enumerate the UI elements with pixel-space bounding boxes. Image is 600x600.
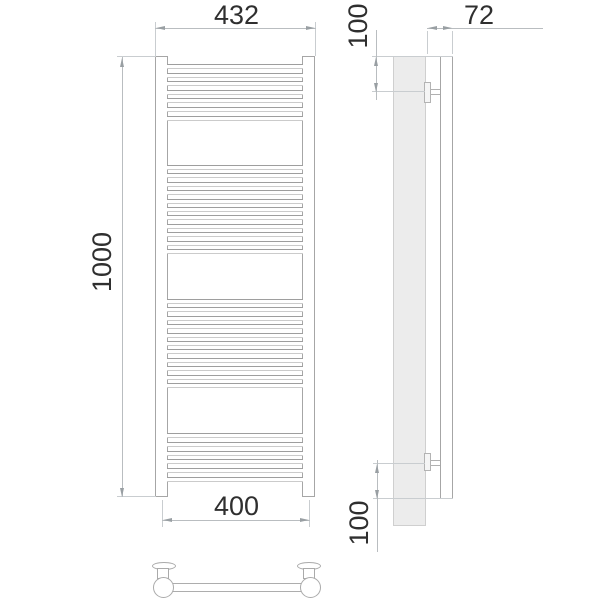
ext-line	[427, 31, 428, 54]
tube-row	[167, 173, 303, 178]
ext-line	[372, 56, 453, 57]
tube-row	[167, 366, 303, 371]
dim-arrow	[120, 488, 124, 497]
tube-row	[167, 375, 303, 380]
tube-row	[167, 307, 303, 312]
dim-label-top-width: 432	[199, 1, 274, 29]
tube-row	[167, 349, 303, 354]
tube-row	[167, 333, 303, 338]
tube-row	[167, 468, 303, 473]
front-left-post	[155, 56, 168, 497]
tube-row	[167, 90, 303, 95]
ext-line	[373, 498, 453, 499]
tube-row	[167, 442, 303, 447]
tube-row	[167, 433, 303, 438]
technical-drawing-canvas: 432 1000 400 72	[0, 0, 600, 600]
dim-arrow	[443, 26, 452, 30]
dim-arrow	[163, 518, 172, 522]
tube-row	[167, 73, 303, 78]
tube-row	[167, 182, 303, 187]
dim-arrow	[374, 57, 378, 66]
ext-line	[373, 463, 425, 464]
dim-label-depth: 72	[453, 1, 505, 29]
dim-arrow	[428, 26, 437, 30]
left-valve-ball	[153, 577, 174, 598]
tube-row	[167, 98, 303, 103]
bottom-view-tube	[172, 583, 306, 592]
tube-row	[167, 207, 303, 212]
ext-line	[309, 500, 310, 527]
side-post-profile	[440, 56, 453, 499]
dim-arrow	[300, 518, 309, 522]
tube-row	[167, 232, 303, 237]
ext-line	[372, 91, 425, 92]
top-bracket-arm	[431, 89, 440, 95]
tube-row	[167, 358, 303, 363]
tube-row	[167, 165, 303, 170]
dim-label-bottom-offset: 100	[345, 495, 373, 551]
tube-row	[167, 316, 303, 321]
tube-row	[167, 224, 303, 229]
ext-line	[452, 31, 453, 54]
side-wall-panel	[393, 56, 426, 526]
tube-row	[167, 477, 303, 482]
tube-row	[167, 199, 303, 204]
dim-label-height: 1000	[88, 231, 116, 293]
ext-line	[162, 500, 163, 527]
dim-arrow	[306, 26, 315, 30]
front-right-post	[302, 56, 315, 497]
dimension-line	[377, 460, 378, 552]
tube-row	[167, 299, 303, 304]
tube-row	[167, 324, 303, 329]
bottom-bracket-plate	[424, 453, 431, 471]
tube-row	[167, 64, 303, 69]
tube-row	[167, 107, 303, 112]
dim-arrow	[375, 490, 379, 499]
bottom-bracket-arm	[431, 460, 440, 466]
top-bracket-plate	[424, 82, 431, 103]
tube-row	[167, 215, 303, 220]
tube-row	[167, 451, 303, 456]
tube-row	[167, 81, 303, 86]
tube-row	[167, 459, 303, 464]
right-valve-ball	[300, 577, 321, 598]
tube-row	[167, 241, 303, 246]
tube-row	[167, 190, 303, 195]
dimension-line	[122, 57, 123, 497]
tube-row	[167, 383, 303, 388]
tube-row	[167, 116, 303, 121]
dim-arrow	[156, 26, 165, 30]
tube-row	[167, 341, 303, 346]
tube-row	[167, 249, 303, 254]
dim-arrow	[375, 464, 379, 473]
dim-arrow	[374, 83, 378, 92]
dim-label-bottom-width: 400	[199, 492, 274, 520]
dim-arrow	[120, 58, 124, 67]
dim-label-top-offset: 100	[344, 0, 372, 54]
